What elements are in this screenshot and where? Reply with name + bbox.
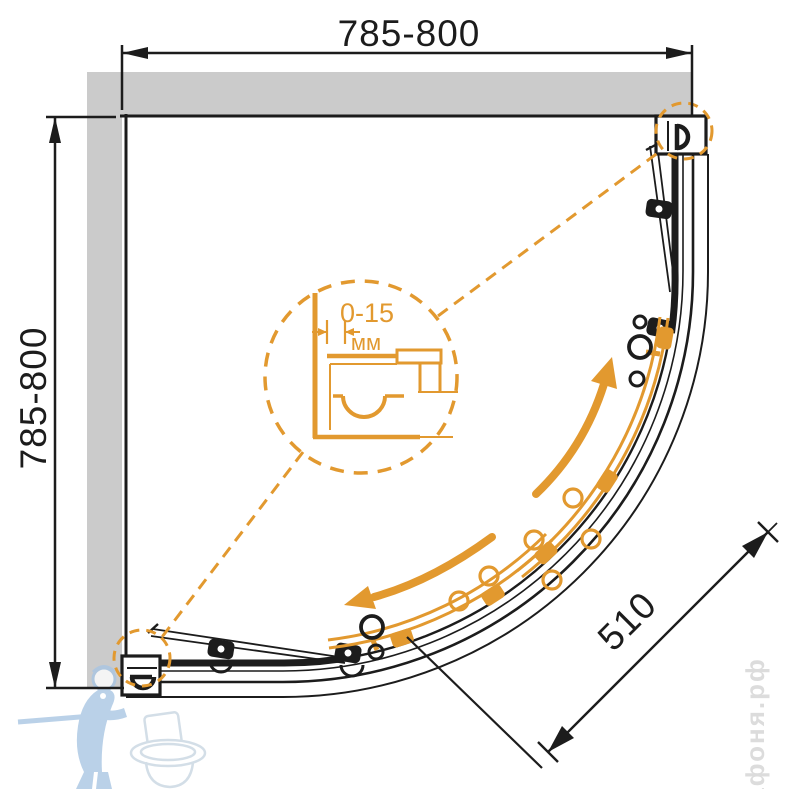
arrow-up-icon bbox=[536, 384, 604, 494]
plumber-watermark bbox=[18, 667, 205, 789]
detail-magnifier: 0-15 мм bbox=[265, 281, 458, 473]
adjustment-unit-label: мм bbox=[351, 330, 381, 355]
dimension-left-label: 785-800 bbox=[13, 327, 54, 470]
wall-profile-bottom-left bbox=[122, 656, 160, 695]
wall-left bbox=[87, 72, 122, 688]
dimension-top-label: 785-800 bbox=[338, 13, 481, 54]
door-clamp-icon bbox=[480, 583, 507, 608]
callout-leader bbox=[162, 452, 303, 637]
door-knob-icon bbox=[361, 616, 383, 638]
track-rail-2 bbox=[156, 154, 683, 671]
toilet-icon bbox=[131, 712, 205, 787]
roller-icon bbox=[630, 372, 644, 386]
roller-icon bbox=[564, 489, 582, 507]
brand-watermark-text: афоня.рф bbox=[740, 657, 770, 789]
adjustment-range-label: 0-15 bbox=[340, 298, 394, 328]
wall-top bbox=[87, 72, 693, 116]
fixed-panel-top-right bbox=[672, 155, 676, 333]
door-clamp-icon bbox=[389, 627, 415, 648]
callout-leader bbox=[438, 152, 659, 316]
fixed-panel-bottom-left bbox=[156, 656, 358, 663]
tray-rim-inner bbox=[126, 154, 693, 682]
door-knob-icon bbox=[629, 336, 651, 358]
arrow-down-icon bbox=[374, 537, 492, 597]
plumber-head bbox=[93, 668, 115, 690]
glass-top-right bbox=[634, 142, 675, 340]
screenshot-root: афоня.рф bbox=[0, 0, 800, 789]
roller-icon bbox=[634, 316, 646, 328]
roller-icon bbox=[582, 530, 600, 548]
plumber-body bbox=[77, 690, 115, 772]
roller-section-icon bbox=[343, 396, 385, 417]
technical-drawing: афоня.рф bbox=[0, 0, 800, 789]
glass-clamp-icon bbox=[645, 198, 673, 219]
